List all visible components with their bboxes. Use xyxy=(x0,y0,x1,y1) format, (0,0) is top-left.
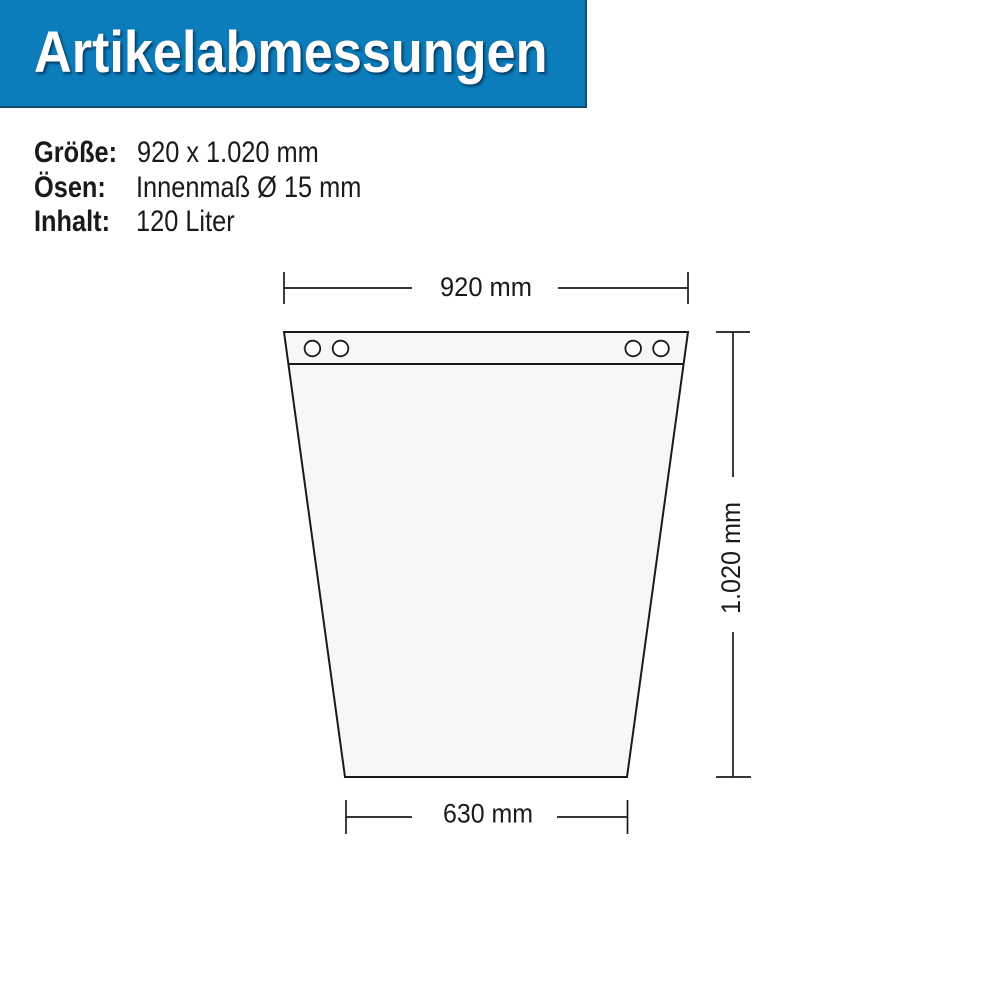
svg-text:1.020 mm: 1.020 mm xyxy=(716,502,746,614)
svg-text:920 mm: 920 mm xyxy=(440,272,532,302)
svg-text:630 mm: 630 mm xyxy=(443,799,533,829)
